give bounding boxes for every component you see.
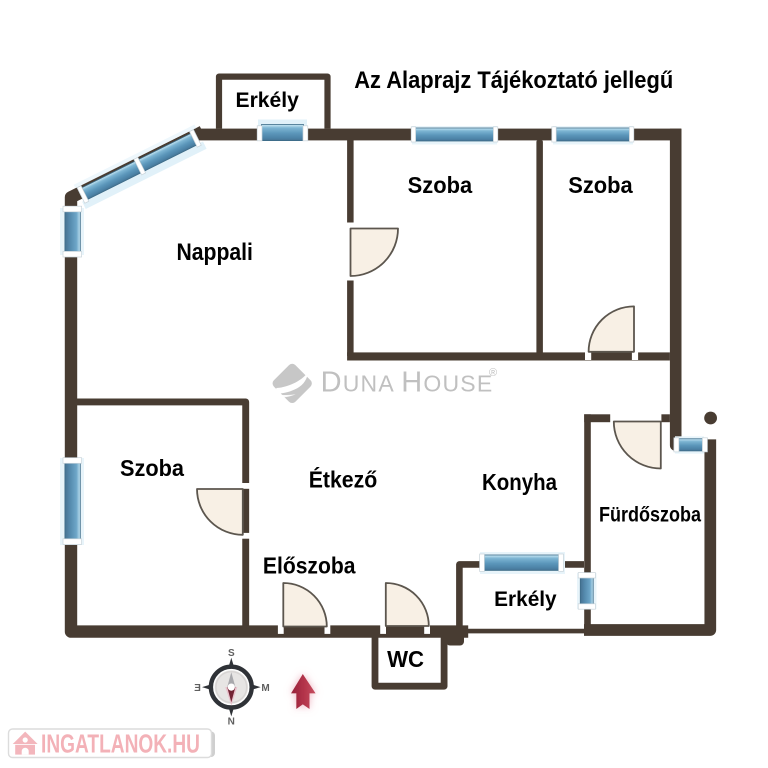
svg-text:Konyha: Konyha [482, 469, 558, 495]
svg-text:Előszoba: Előszoba [263, 553, 356, 579]
svg-text:Szoba: Szoba [120, 455, 185, 481]
svg-text:S: S [228, 648, 235, 659]
svg-text:M: M [261, 683, 269, 694]
svg-text:Étkező: Étkező [309, 466, 378, 493]
svg-text:Szoba: Szoba [568, 172, 633, 198]
svg-text:DUNA HOUSE: DUNA HOUSE [321, 366, 494, 398]
svg-text:Fürdőszoba: Fürdőszoba [599, 502, 702, 526]
svg-text:INGATLANOK.HU: INGATLANOK.HU [41, 729, 200, 759]
svg-text:Szoba: Szoba [408, 172, 473, 198]
svg-text:N: N [228, 717, 235, 728]
svg-text:E: E [194, 683, 201, 694]
svg-text:WC: WC [387, 646, 424, 672]
svg-text:Erkély: Erkély [494, 587, 557, 611]
svg-text:Erkély: Erkély [236, 88, 299, 112]
svg-text:Az Alaprajz Tájékoztató jelleg: Az Alaprajz Tájékoztató jellegű [354, 67, 673, 94]
svg-text:Nappali: Nappali [176, 239, 253, 266]
svg-text:®: ® [489, 367, 497, 379]
